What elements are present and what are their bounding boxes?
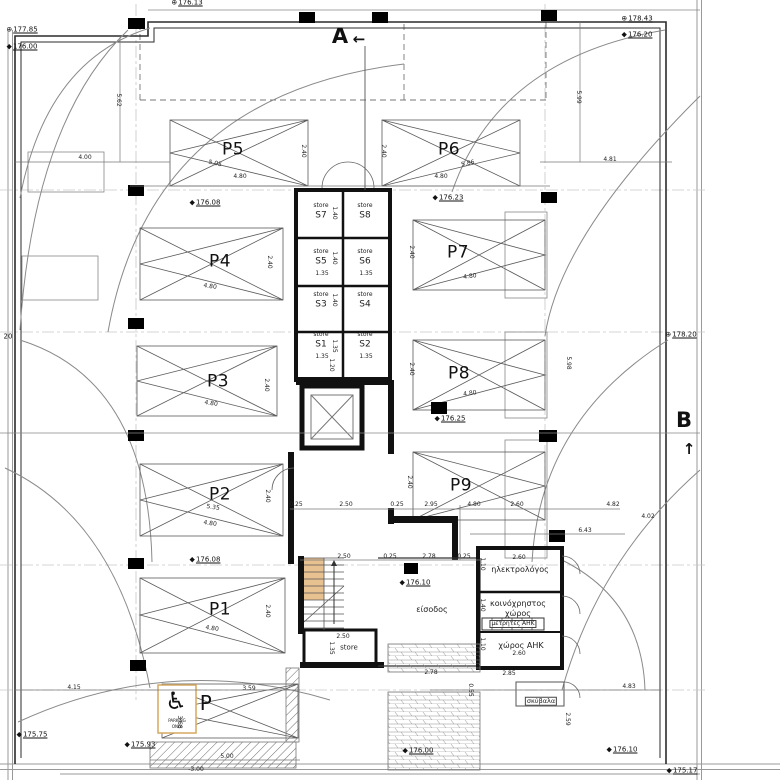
dimension-label: 2.40	[380, 144, 386, 157]
wheelchair-icon: ♿	[165, 689, 187, 713]
level-circle-icon: ⊕	[621, 15, 627, 23]
elevation-marker: ⊕178.20	[665, 332, 696, 339]
room-label: σκύβαλα	[525, 697, 557, 706]
elevation-marker: ◆176.08	[190, 557, 221, 564]
room-label: χώρος	[505, 610, 531, 618]
storage-label: S3	[315, 301, 326, 310]
dimension-label: 2.40	[264, 604, 270, 617]
storage-label: store	[357, 332, 372, 338]
dimension-label: 2.78	[422, 554, 435, 560]
storage-label: S1	[315, 341, 326, 350]
dimension-label: 5.05	[208, 160, 222, 169]
level-diamond-icon: ◆	[7, 43, 12, 51]
room-label: ηλεκτρολόγος	[491, 566, 549, 574]
elevation-marker: ◆176.00	[7, 44, 38, 51]
level-diamond-icon: ◆	[190, 199, 195, 207]
level-diamond-icon: ◆	[607, 746, 612, 754]
level-diamond-icon: ◆	[622, 31, 627, 39]
storage-label: S7	[315, 212, 326, 221]
room-label: είσοδος	[416, 606, 447, 614]
dimension-label: -3.00	[188, 767, 204, 773]
room-label: χώρος ΑΗΚ	[498, 642, 543, 650]
dimension-label: 1.35	[359, 271, 372, 277]
parking-label-p6: P6	[438, 142, 460, 159]
elevation-marker: ⊕177.85	[6, 27, 37, 34]
dimension-label: 2.85	[502, 671, 515, 677]
dimension-label: 5.86	[461, 160, 475, 169]
dimension-label: 2.60	[512, 555, 525, 561]
dimension-label: 0.25	[289, 502, 302, 508]
dimension-label: 1.35	[331, 339, 337, 352]
level-diamond-icon: ◆	[190, 556, 195, 564]
parking-label-p4: P4	[209, 254, 231, 271]
dimension-label: 4.80	[233, 174, 246, 180]
section-marker-b: B	[676, 408, 692, 432]
storage-label: S6	[359, 258, 370, 267]
dimension-label: 4.80	[205, 625, 219, 633]
storage-label: S4	[359, 301, 370, 310]
dimension-label: 2.40	[406, 475, 412, 488]
parking-label-p1: P1	[209, 602, 231, 619]
dimension-label: 4.80	[463, 390, 477, 398]
storage-label: store	[340, 645, 358, 652]
dimension-label: 2.60	[512, 651, 525, 657]
storage-label: S2	[359, 341, 370, 350]
dimension-label: 1.35	[315, 271, 328, 277]
level-circle-icon: ⊕	[6, 26, 12, 34]
section-arrow-b-icon: ↑	[683, 440, 696, 458]
room-label: μετρητές ΑΗΚ	[489, 620, 536, 628]
dimension-label: 0.55	[467, 683, 473, 696]
level-diamond-icon: ◆	[435, 415, 440, 423]
elevation-marker: ◆176.10	[607, 747, 638, 754]
elevation-marker: ◆176.23	[433, 195, 464, 202]
parking-label-p5: P5	[222, 142, 244, 159]
storage-label: store	[357, 292, 372, 298]
storage-label: S8	[359, 212, 370, 221]
dimension-label: 2.60	[510, 502, 523, 508]
dimension-label: 1.20	[328, 358, 334, 371]
dimension-label: 4.80	[203, 283, 217, 291]
dimension-label: 5.35	[206, 504, 220, 512]
dimension-label: 2.50	[336, 634, 349, 640]
elevation-marker: ◆176.08	[190, 200, 221, 207]
parking-label-p3: P3	[207, 374, 229, 391]
level-diamond-icon: ◆	[17, 731, 22, 739]
dimension-label: 4.80	[203, 520, 217, 528]
elevation-marker: ◆175.75	[17, 732, 48, 739]
storage-label: store	[313, 332, 328, 338]
dimension-label: 2.50	[339, 502, 352, 508]
dimension-label: 1.10	[479, 637, 485, 650]
elevation-marker: ◆176.20	[622, 32, 653, 39]
dimension-label: 0.25	[383, 554, 396, 560]
dimension-label: 4.81	[603, 157, 616, 163]
elevation-marker: ◆175.17	[667, 768, 698, 775]
level-circle-icon: ⊕	[171, 0, 177, 7]
accessible-sign-text: PARKING	[168, 719, 186, 723]
dimension-label: 1.35	[315, 354, 328, 360]
elevation-marker: ◆176.25	[435, 416, 466, 423]
section-marker-a: A	[332, 24, 348, 48]
dimension-label: 4.80	[204, 400, 218, 408]
dimension-label: 1.35	[328, 641, 334, 654]
dimension-label: 5.62	[115, 93, 121, 106]
parking-label-accessible: P	[200, 693, 213, 713]
dimension-label: 1.40	[331, 293, 337, 306]
level-circle-icon: ⊕	[665, 331, 671, 339]
dimension-label: 2.95	[424, 502, 437, 508]
elevation-marker: ⊕178.43	[621, 16, 652, 23]
dimension-label: 1.40	[331, 206, 337, 219]
dimension-label: 5.00	[220, 754, 233, 760]
level-diamond-icon: ◆	[403, 747, 408, 755]
dimension-label: 2.40	[266, 255, 272, 268]
dimension-label: 5.99	[575, 90, 581, 103]
dimension-label: 1.10	[479, 557, 485, 570]
storage-label: store	[357, 203, 372, 209]
parking-label-p2: P2	[209, 487, 231, 504]
dimension-label: 2.40	[263, 378, 269, 391]
dimension-label: 4.82	[606, 502, 619, 508]
dimension-label: 2.40	[264, 489, 270, 502]
dimension-label: 4.00	[78, 155, 91, 161]
section-arrow-a-icon: ←	[353, 30, 366, 48]
room-label: κοινόχρηστος	[490, 600, 546, 608]
dimension-label: 1.40	[331, 251, 337, 264]
elevation-marker: ⊕176.13	[171, 0, 202, 7]
dimension-label: 6.43	[578, 528, 591, 534]
storage-label: store	[313, 292, 328, 298]
dimension-label: 2.78	[424, 670, 437, 676]
dimension-label: 0.25	[457, 554, 470, 560]
dimension-label: 4.80	[463, 273, 477, 281]
parking-label-p9: P9	[450, 478, 472, 495]
parking-label-p8: P8	[448, 366, 470, 383]
dimension-label: 1.35	[359, 354, 372, 360]
parking-label-p7: P7	[447, 245, 469, 262]
dimension-label: 2.40	[300, 144, 306, 157]
accessible-sign-text: ONLY	[172, 725, 182, 729]
dimension-label: 4.15	[67, 685, 80, 691]
dimension-label: 2.50	[337, 554, 350, 560]
dimension-label: 0.25	[390, 502, 403, 508]
dimension-label: 4.80	[467, 502, 480, 508]
dimension-label: 2.40	[408, 362, 414, 375]
storage-label: store	[313, 203, 328, 209]
level-diamond-icon: ◆	[667, 767, 672, 775]
level-diamond-icon: ◆	[125, 741, 130, 749]
level-diamond-icon: ◆	[433, 194, 438, 202]
floor-plan: A ← B ↑ P5P6P4P7P3P8P2P9P1PstoreS7storeS…	[0, 0, 780, 780]
dimension-label: 3.59	[242, 686, 255, 692]
storage-label: S5	[315, 258, 326, 267]
storage-label: store	[313, 249, 328, 255]
elevation-marker: ◆176.10	[400, 580, 431, 587]
storage-label: store	[357, 249, 372, 255]
dimension-label: 4.83	[622, 684, 635, 690]
level-diamond-icon: ◆	[400, 579, 405, 587]
dimension-label: 2.59	[564, 712, 570, 725]
dimension-label: 5.98	[565, 356, 571, 369]
edge-label: 20	[4, 334, 13, 341]
dimension-label: 2.40	[408, 245, 414, 258]
dimension-label: 1.40	[479, 598, 485, 611]
dimension-label: 4.80	[434, 174, 447, 180]
labels-layer: A ← B ↑ P5P6P4P7P3P8P2P9P1PstoreS7storeS…	[0, 0, 780, 780]
elevation-marker: ◆176.00	[403, 748, 434, 755]
dimension-label: 4.02	[641, 514, 654, 520]
elevation-marker: ◆175.93	[125, 742, 156, 749]
